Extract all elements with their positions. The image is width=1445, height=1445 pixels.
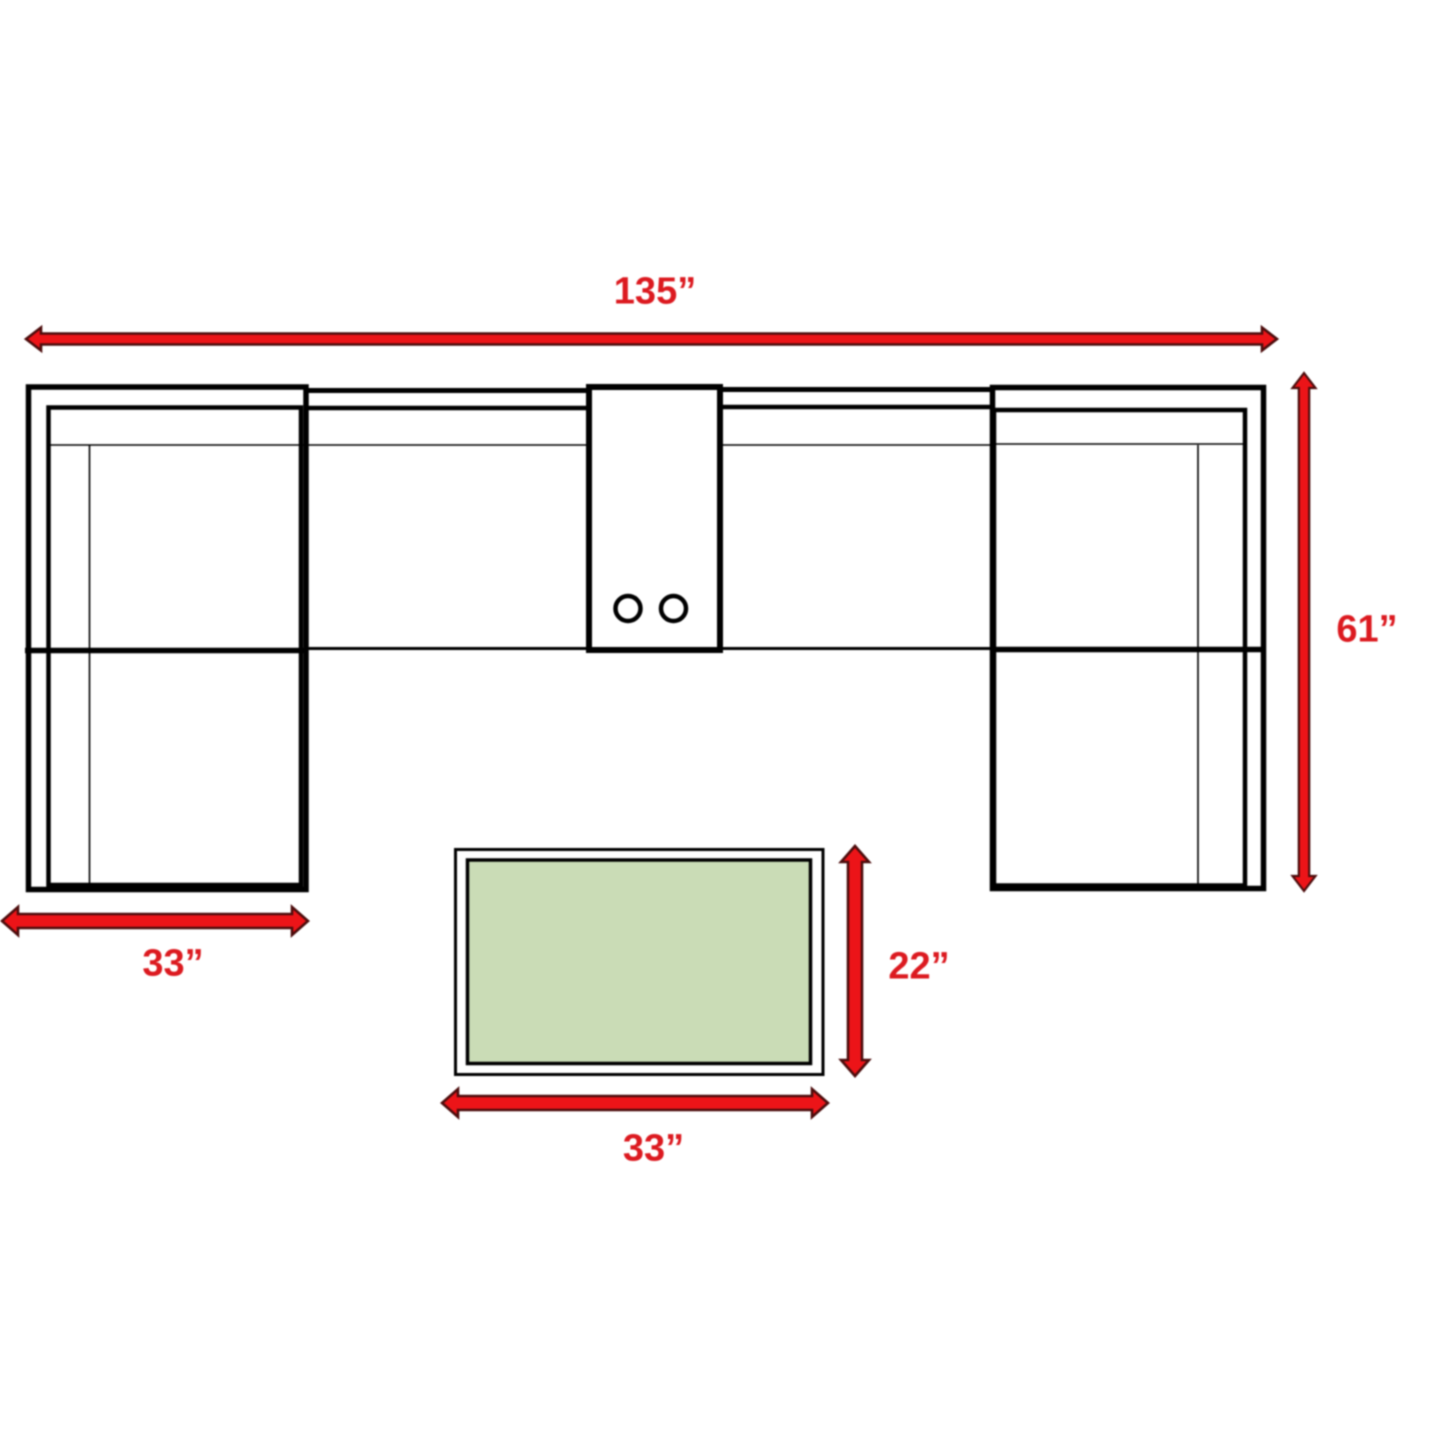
svg-text:33”: 33” bbox=[623, 1128, 684, 1170]
svg-text:22”: 22” bbox=[888, 946, 949, 988]
svg-text:135”: 135” bbox=[614, 271, 696, 313]
svg-text:61”: 61” bbox=[1336, 609, 1397, 651]
svg-text:33”: 33” bbox=[142, 943, 203, 985]
